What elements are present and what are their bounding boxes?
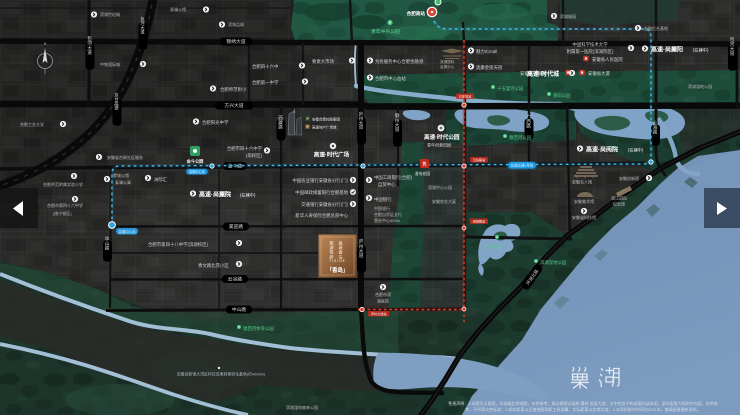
svg-text:滨湖湿地公园: 滨湖湿地公园 xyxy=(688,83,712,89)
svg-text:洲际汇: 洲际汇 xyxy=(154,176,168,183)
svg-text:安徽创新馆: 安徽创新馆 xyxy=(619,175,639,181)
svg-text:塘西河体育公园: 塘西河体育公园 xyxy=(243,325,274,332)
svg-text:安徽创新馆大湾区科技成果转移转化基地(约4000m): 安徽创新馆大湾区科技成果转移转化基地(约4000m) xyxy=(177,372,266,377)
svg-text:滨湖国际: 滨湖国际 xyxy=(440,59,455,64)
svg-text:广西路: 广西路 xyxy=(526,113,532,129)
svg-text:十五里河公园: 十五里河公园 xyxy=(497,85,524,92)
svg-text:美迎路: 美迎路 xyxy=(229,223,244,230)
svg-text:渡江战役: 渡江战役 xyxy=(611,195,627,201)
svg-text:中国邮政储蓄银行合肥基地: 中国邮政储蓄银行合肥基地 xyxy=(295,189,348,196)
svg-text:营业中心400m: 营业中心400m xyxy=(374,217,401,223)
svg-text:熙湖悦府: 熙湖悦府 xyxy=(330,241,335,260)
svg-text:轨道交通1号线: 轨道交通1号线 xyxy=(511,163,534,168)
svg-text:方兴大道: 方兴大道 xyxy=(224,102,243,109)
svg-text:高速·尚阅院: 高速·尚阅院 xyxy=(586,146,618,154)
svg-text:TISIOE: TISIOE xyxy=(329,259,345,263)
svg-text:中铁国际城: 中铁国际城 xyxy=(100,61,120,67)
svg-text:泰澜公寓: 泰澜公寓 xyxy=(115,179,131,185)
svg-text:合肥第一中学: 合肥第一中学 xyxy=(252,79,279,86)
svg-text:「香岛」: 「香岛」 xyxy=(327,266,349,274)
svg-text:安徽省大厦: 安徽省大厦 xyxy=(588,70,611,77)
svg-text:合肥师范附属实验小学: 合肥师范附属实验小学 xyxy=(43,181,83,187)
svg-text:考，不代表交房标准；3.相关距离以百度地图测距工具测算，实际: 考，不代表交房标准；3.相关距离以百度地图测距工具测算，实际距离以实地为准；4.… xyxy=(465,406,701,412)
svg-text:云谷路: 云谷路 xyxy=(228,276,243,283)
svg-text:(南校区): (南校区) xyxy=(246,152,263,159)
svg-text:湿地乐园: 湿地乐园 xyxy=(484,243,502,250)
svg-text:青年创意田园: 青年创意田园 xyxy=(427,142,451,148)
svg-text:包河大道: 包河大道 xyxy=(729,36,735,57)
svg-text:为民服务中心合肥金融港: 为民服务中心合肥金融港 xyxy=(375,58,424,65)
svg-text:合肥阳光中学: 合肥阳光中学 xyxy=(202,119,229,126)
svg-text:金融中心站: 金融中心站 xyxy=(189,169,206,174)
svg-text:安徽省人民医院: 安徽省人民医院 xyxy=(592,56,623,63)
svg-text:观澜公馆: 观澜公馆 xyxy=(170,6,186,12)
svg-text:万年埠站: 万年埠站 xyxy=(459,94,471,99)
svg-text:(在建中): (在建中) xyxy=(628,147,644,154)
svg-text:云谷路站: 云谷路站 xyxy=(473,157,485,162)
svg-text:庐州大道: 庐州大道 xyxy=(358,110,364,130)
svg-text:包河大道: 包河大道 xyxy=(140,15,146,35)
svg-text:免责声明：1.本图为示意图，非准确比例地图，仅供参考；周边规: 免责声明：1.本图为示意图，非准确比例地图，仅供参考；周边规划以政府 最终 批复… xyxy=(448,400,718,406)
svg-text:高速地产广场馆: 高速地产广场馆 xyxy=(312,125,337,130)
svg-text:会展中心站: 会展中心站 xyxy=(119,229,137,234)
svg-text:华山路: 华山路 xyxy=(104,235,110,251)
svg-text:魅力ICmall: 魅力ICmall xyxy=(476,48,497,55)
svg-text:滨湖顺园: 滨湖顺园 xyxy=(560,13,576,19)
svg-text:合肥市第四十六中学: 合肥市第四十六中学 xyxy=(47,202,83,208)
svg-text:金斗公园: 金斗公园 xyxy=(186,158,204,165)
svg-text:附属第一医院(滨湖院区): 附属第一医院(滨湖院区) xyxy=(567,48,614,55)
svg-text:(在建中): (在建中) xyxy=(240,192,256,199)
svg-text:新华人寿保险合肥总部中心: 新华人寿保险合肥总部中心 xyxy=(295,212,348,219)
svg-text:滨湖世纪城: 滨湖世纪城 xyxy=(100,11,120,17)
svg-text:要素大市场: 要素大市场 xyxy=(312,58,335,65)
svg-text:滨湖湿地森林公园: 滨湖湿地森林公园 xyxy=(286,404,318,410)
svg-text:合肥师范附小: 合肥师范附小 xyxy=(220,86,247,93)
svg-text:高速·时代城: 高速·时代城 xyxy=(527,70,559,78)
svg-text:(在建中): (在建中) xyxy=(693,47,709,54)
svg-text:中国工商银行(合肥): 中国工商银行(合肥) xyxy=(374,174,413,181)
svg-text:塘西河公园: 塘西河公园 xyxy=(509,134,532,141)
svg-text:高速·时代广场: 高速·时代广场 xyxy=(314,151,350,159)
svg-text:高速·时代公园: 高速·时代公园 xyxy=(424,133,460,141)
svg-text:N: N xyxy=(44,42,47,46)
svg-text:京台高速: 京台高速 xyxy=(114,91,120,111)
svg-text:合肥市滨: 合肥市滨 xyxy=(375,291,391,297)
svg-text:湖医院: 湖医院 xyxy=(377,298,389,304)
svg-text:奥康金街天街: 奥康金街天街 xyxy=(476,64,503,71)
svg-text:高速·尚麗阳: 高速·尚麗阳 xyxy=(651,46,683,54)
svg-text:滨湖品阁: 滨湖品阁 xyxy=(228,21,244,27)
svg-text:纪念馆: 纪念馆 xyxy=(613,201,625,207)
svg-text:安徽合肥控股集团: 安徽合肥控股集团 xyxy=(312,117,340,122)
svg-text:青文路北苑小区: 青文路北苑小区 xyxy=(198,262,229,269)
svg-text:中国科学技术大学: 中国科学技术大学 xyxy=(572,41,608,48)
svg-text:合肥工业大学: 合肥工业大学 xyxy=(20,121,44,127)
svg-text:徽州大道: 徽州大道 xyxy=(394,112,400,133)
svg-text:包河大道: 包河大道 xyxy=(87,35,93,56)
svg-text:合肥市中心血站: 合肥市中心血站 xyxy=(375,75,406,82)
svg-text:青年中央公园: 青年中央公园 xyxy=(371,28,400,35)
svg-text:滨湖湿地公园: 滨湖湿地公园 xyxy=(540,259,567,266)
svg-text:庐州大道站: 庐州大道站 xyxy=(371,311,386,316)
svg-text:合肥四十六中: 合肥四十六中 xyxy=(252,63,278,70)
svg-text:庐州大道: 庐州大道 xyxy=(358,238,364,259)
svg-text:售: 售 xyxy=(422,161,427,168)
svg-text:合肥自贸区支行: 合肥自贸区支行 xyxy=(374,211,402,217)
svg-text:中国银行: 中国银行 xyxy=(374,196,392,203)
svg-text:滨湖中心公园: 滨湖中心公园 xyxy=(428,184,452,190)
svg-text:(南宁校区): (南宁校区) xyxy=(53,210,72,216)
svg-text:安徽农金大厦: 安徽农金大厦 xyxy=(432,198,456,204)
svg-text:香岛花园: 香岛花园 xyxy=(415,171,430,176)
svg-text:安徽美术馆: 安徽美术馆 xyxy=(574,198,594,204)
svg-text:中山路: 中山路 xyxy=(232,306,247,313)
svg-text:锦绣大道: 锦绣大道 xyxy=(226,38,245,45)
svg-text:蒙城公馆: 蒙城公馆 xyxy=(113,172,129,178)
svg-text:中国农业银行安徽省分行(门): 中国农业银行安徽省分行(门) xyxy=(292,177,348,184)
svg-text:自贸中心: 自贸中心 xyxy=(378,181,396,188)
svg-text:金融后台基地: 金融后台基地 xyxy=(644,25,668,31)
svg-text:安徽省科技馆: 安徽省科技馆 xyxy=(572,214,596,220)
svg-text:会展中心: 会展中心 xyxy=(440,64,455,69)
svg-text:合肥南站: 合肥南站 xyxy=(407,10,426,17)
svg-text:西藏路: 西藏路 xyxy=(278,115,284,130)
svg-text:贵阳路站: 贵阳路站 xyxy=(473,219,485,224)
svg-text:中国银行: 中国银行 xyxy=(374,205,390,211)
svg-text:合肥市第四十八中学(滨湖校区): 合肥市第四十八中学(滨湖校区) xyxy=(148,241,209,248)
svg-text:高速·尚麗院: 高速·尚麗院 xyxy=(199,191,231,199)
svg-text:上海路: 上海路 xyxy=(652,119,658,135)
svg-text:合肥市四十六中学: 合肥市四十六中学 xyxy=(227,145,263,152)
svg-text:骆岗公园: 骆岗公园 xyxy=(553,92,571,99)
svg-text:高速香岛: 高速香岛 xyxy=(339,240,344,260)
svg-text:交通银行安徽省分行(门): 交通银行安徽省分行(门) xyxy=(301,201,348,208)
svg-text:安徽名人馆: 安徽名人馆 xyxy=(572,179,592,185)
svg-text:安徽省台联社区服务: 安徽省台联社区服务 xyxy=(107,154,143,160)
